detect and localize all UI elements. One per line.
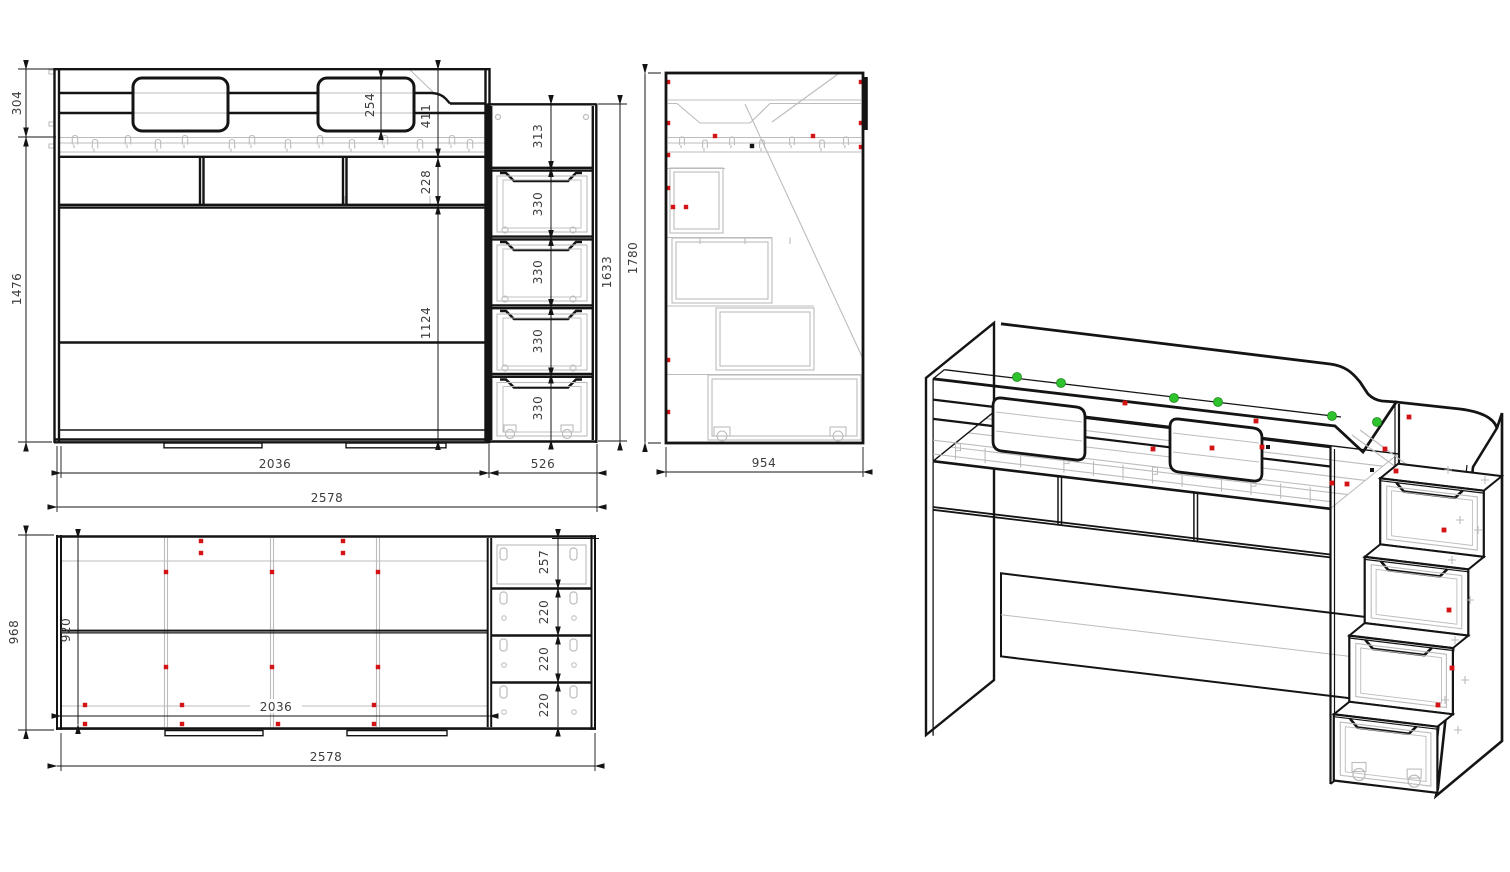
drawing-canvas: 304 1476 254 411 228 1124 313 330 330 33… bbox=[0, 0, 1510, 872]
front-rail-cutout-left bbox=[133, 78, 228, 131]
dim-stair-column-height: 1633 bbox=[600, 256, 614, 289]
dim-front-top-rail: 304 bbox=[10, 91, 24, 115]
dim-stair-drawer-2: 330 bbox=[531, 260, 545, 284]
side-view-dimensions: 1780 954 bbox=[626, 73, 863, 477]
dim-front-rail-platform: 411 bbox=[419, 104, 433, 128]
dim-stair-drawer-4: 330 bbox=[531, 396, 545, 420]
dim-plan-comp-3: 220 bbox=[537, 647, 551, 671]
dim-front-bed-width: 2036 bbox=[259, 457, 292, 471]
dim-front-cutout: 254 bbox=[363, 93, 377, 117]
isometric-view bbox=[926, 323, 1502, 796]
dim-front-shelf-band: 228 bbox=[419, 170, 433, 194]
dim-plan-inner-depth: 920 bbox=[59, 618, 73, 642]
dim-stair-drawer-3: 330 bbox=[531, 329, 545, 353]
dim-front-stair-width: 526 bbox=[531, 457, 555, 471]
dim-front-total-width: 2578 bbox=[311, 491, 344, 505]
front-elevation-view: 304 1476 254 411 228 1124 313 330 330 33… bbox=[10, 68, 627, 512]
side-view-linework bbox=[666, 73, 866, 443]
dim-plan-comp-4: 220 bbox=[537, 693, 551, 717]
dim-plan-comp-1: 257 bbox=[537, 550, 551, 574]
dim-plan-comp-2: 220 bbox=[537, 600, 551, 624]
plan-view-dimensions: 968 920 2036 2578 257 220 220 220 bbox=[7, 535, 599, 771]
side-elevation-view: 1780 954 bbox=[626, 73, 866, 477]
dim-stair-drawer-1: 330 bbox=[531, 192, 545, 216]
dim-plan-total-width: 2578 bbox=[310, 750, 343, 764]
front-view-hardware-glyphs bbox=[72, 136, 472, 207]
plan-view: 968 920 2036 2578 257 220 220 220 bbox=[7, 535, 599, 771]
dim-front-lower-panel: 1124 bbox=[419, 307, 433, 340]
front-view-linework bbox=[54, 68, 597, 448]
dim-plan-bed-width: 2036 bbox=[260, 700, 293, 714]
side-view-fastener-markers bbox=[666, 80, 863, 414]
dim-front-body-height: 1476 bbox=[10, 273, 24, 306]
dim-plan-depth: 968 bbox=[7, 620, 21, 644]
side-view-hidden-linework bbox=[666, 74, 864, 441]
dim-side-depth: 954 bbox=[752, 456, 776, 470]
dim-side-height: 1780 bbox=[626, 242, 640, 275]
dim-stair-top-opening: 313 bbox=[531, 124, 545, 148]
cad-drawing: 304 1476 254 411 228 1124 313 330 330 33… bbox=[0, 0, 1510, 872]
